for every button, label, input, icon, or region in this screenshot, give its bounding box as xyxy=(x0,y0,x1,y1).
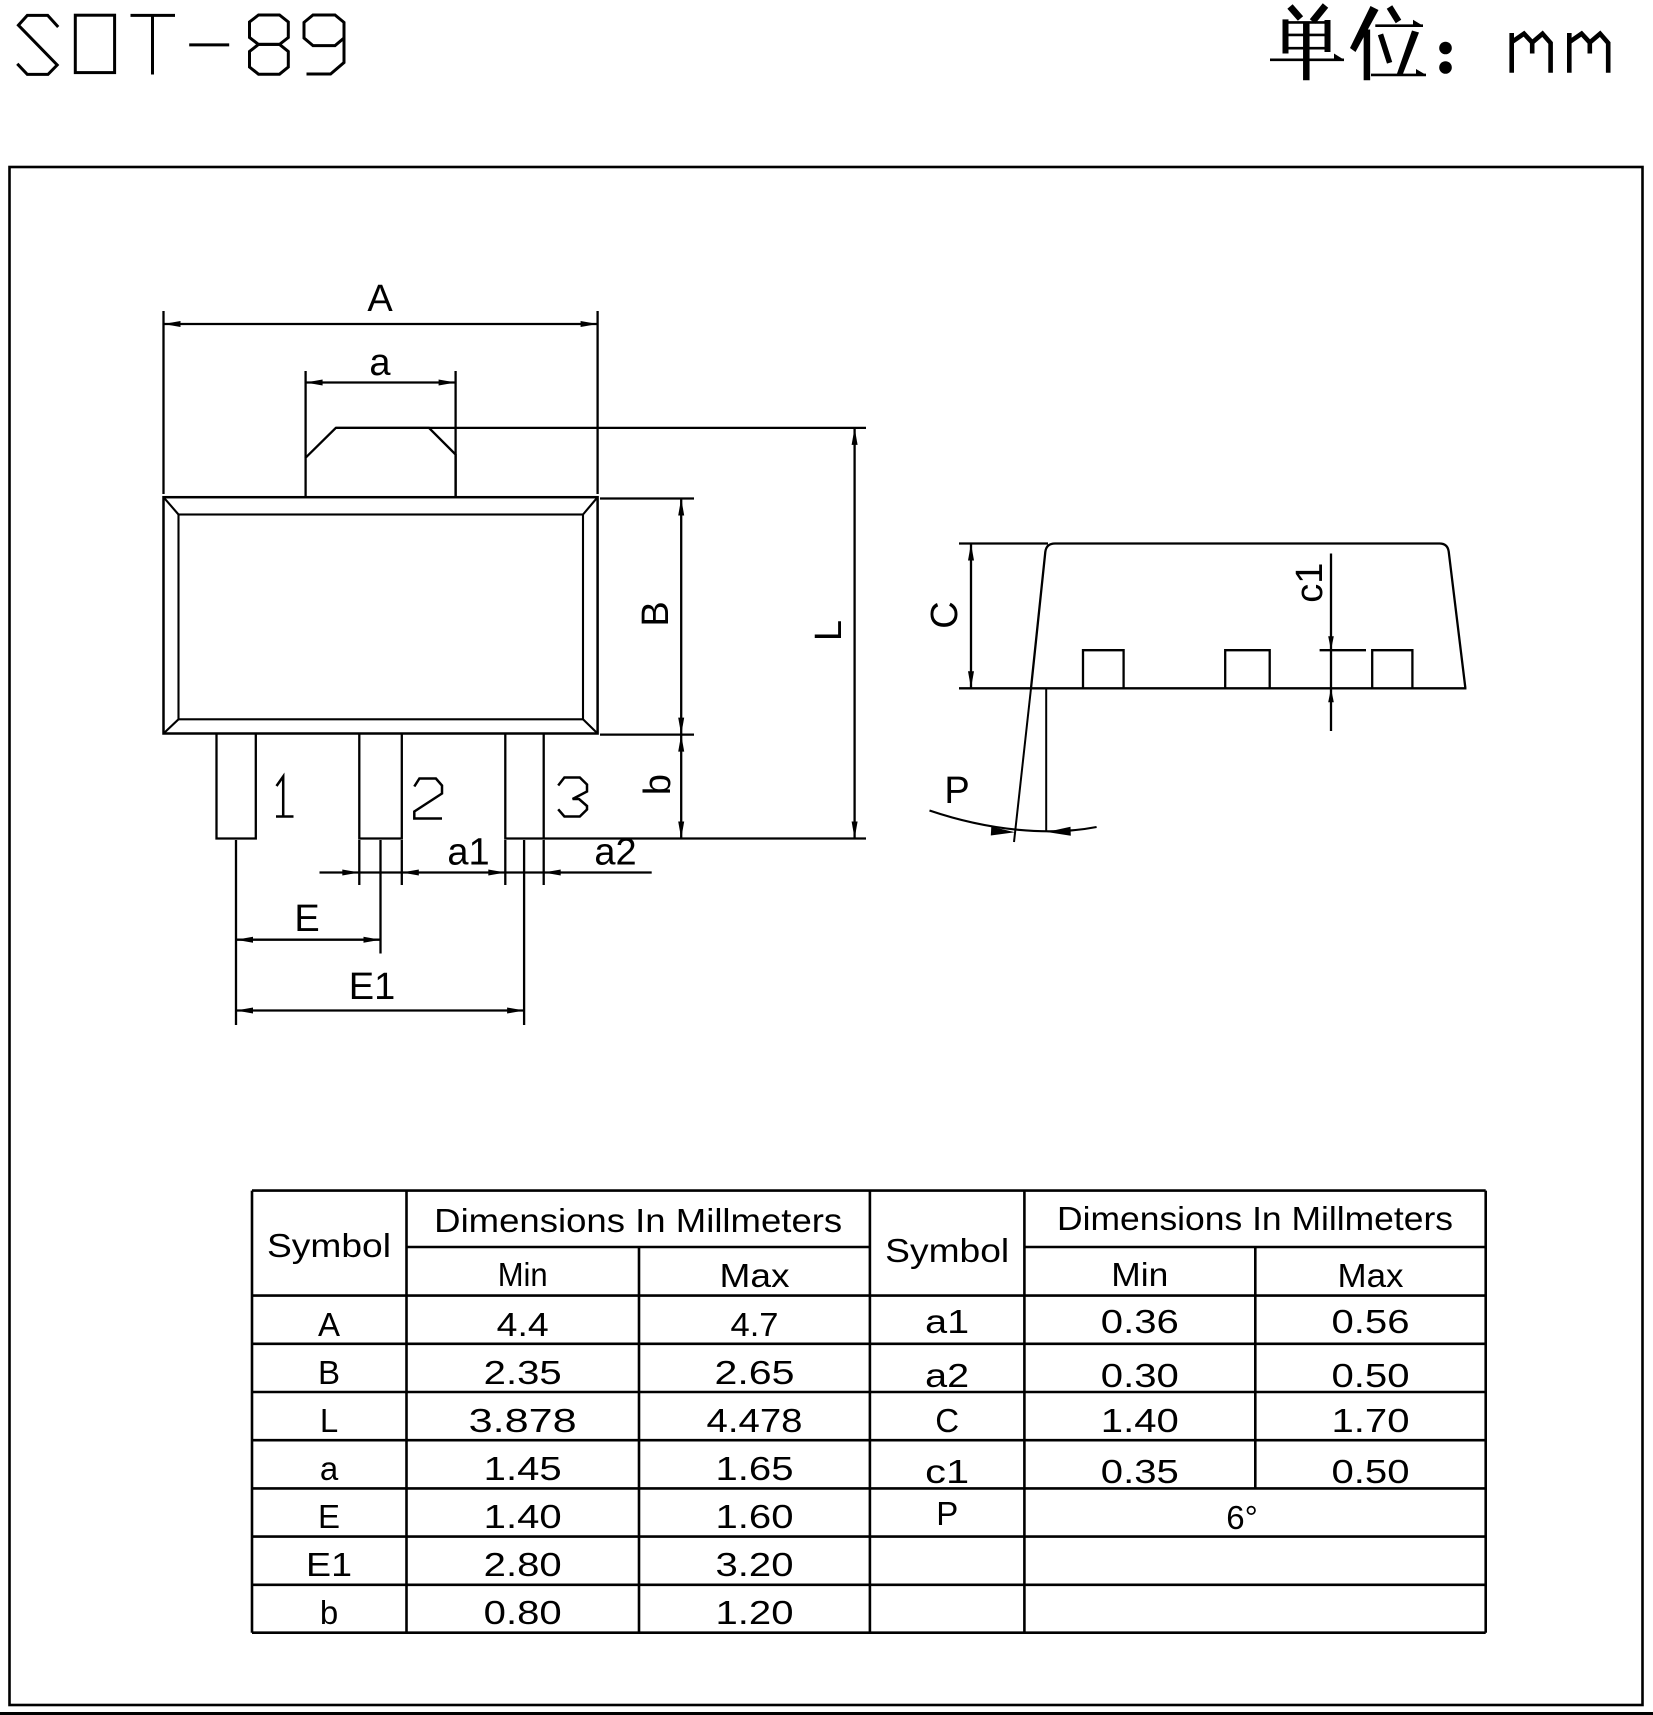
svg-text:0.30: 0.30 xyxy=(1101,1357,1179,1394)
svg-text:0.50: 0.50 xyxy=(1332,1453,1410,1490)
svg-text:a: a xyxy=(369,342,391,384)
svg-text:A: A xyxy=(318,1306,340,1343)
svg-text:1.20: 1.20 xyxy=(716,1594,794,1631)
svg-text:1.40: 1.40 xyxy=(484,1498,562,1535)
svg-text:b: b xyxy=(320,1594,338,1631)
svg-text:Dimensions In Millmeters: Dimensions In Millmeters xyxy=(434,1202,842,1239)
svg-text:E: E xyxy=(294,898,319,940)
svg-text:a: a xyxy=(320,1450,339,1487)
svg-text:E: E xyxy=(318,1498,340,1535)
svg-text:2.80: 2.80 xyxy=(484,1546,562,1583)
svg-text:C: C xyxy=(924,601,966,628)
svg-text:L: L xyxy=(320,1402,338,1439)
svg-text:4.7: 4.7 xyxy=(731,1306,779,1343)
svg-text:a1: a1 xyxy=(925,1303,969,1340)
svg-text:c1: c1 xyxy=(925,1453,969,1490)
svg-text:Dimensions In Millmeters: Dimensions In Millmeters xyxy=(1057,1200,1453,1237)
svg-text:4.4: 4.4 xyxy=(497,1306,549,1343)
svg-text:Min: Min xyxy=(1111,1256,1168,1293)
svg-text:Max: Max xyxy=(720,1257,791,1294)
svg-text:0.56: 0.56 xyxy=(1332,1303,1410,1340)
svg-text:a2: a2 xyxy=(925,1357,969,1394)
svg-text:L: L xyxy=(808,620,850,641)
svg-text:b: b xyxy=(637,774,679,795)
svg-text:C: C xyxy=(935,1402,959,1439)
svg-text:2.35: 2.35 xyxy=(484,1354,562,1391)
svg-text:0.35: 0.35 xyxy=(1101,1453,1179,1490)
svg-text:4.478: 4.478 xyxy=(707,1402,803,1439)
svg-text:2.65: 2.65 xyxy=(715,1354,795,1391)
svg-text:B: B xyxy=(318,1354,340,1391)
svg-text:0.80: 0.80 xyxy=(484,1594,562,1631)
svg-text:c1: c1 xyxy=(1289,563,1331,603)
svg-text:6°: 6° xyxy=(1226,1499,1258,1536)
svg-text:A: A xyxy=(367,278,393,320)
svg-text:0.50: 0.50 xyxy=(1332,1357,1410,1394)
svg-text:Min: Min xyxy=(498,1256,548,1293)
svg-text:a2: a2 xyxy=(594,832,636,874)
svg-text:1.70: 1.70 xyxy=(1332,1402,1410,1439)
svg-text:Max: Max xyxy=(1338,1257,1405,1294)
svg-text:3.20: 3.20 xyxy=(716,1546,794,1583)
svg-text:Symbol: Symbol xyxy=(267,1227,391,1264)
svg-text:E1: E1 xyxy=(306,1546,352,1583)
svg-text:B: B xyxy=(635,601,677,626)
svg-text:1.60: 1.60 xyxy=(716,1498,794,1535)
svg-text:3.878: 3.878 xyxy=(469,1402,577,1439)
svg-text:1.45: 1.45 xyxy=(484,1450,562,1487)
svg-text:a1: a1 xyxy=(447,832,489,874)
svg-text:1.65: 1.65 xyxy=(716,1450,794,1487)
svg-text:0.36: 0.36 xyxy=(1101,1303,1179,1340)
svg-text:Symbol: Symbol xyxy=(885,1232,1009,1269)
svg-text:P: P xyxy=(944,770,969,812)
svg-text:1.40: 1.40 xyxy=(1101,1402,1179,1439)
svg-text:E1: E1 xyxy=(349,966,395,1008)
svg-text:P: P xyxy=(936,1495,958,1532)
